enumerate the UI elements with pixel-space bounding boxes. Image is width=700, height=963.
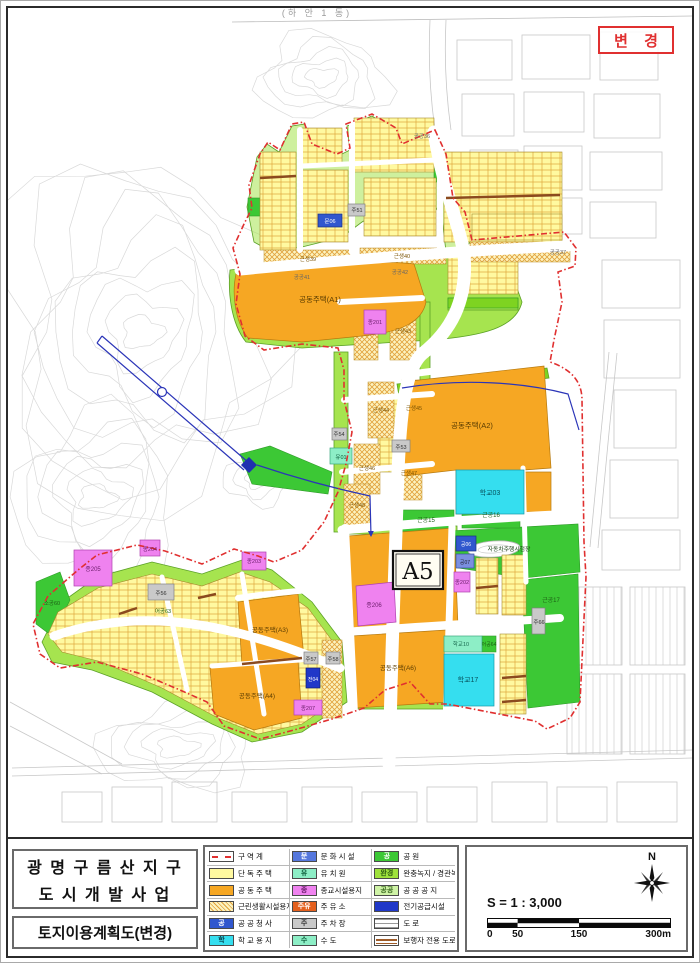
scale-tick-label: 150 (571, 929, 588, 940)
legend-label: 주 차 장 (321, 918, 346, 929)
map-label: 학교03 (480, 488, 501, 497)
legend-label: 보행자 전용 도로 (403, 935, 455, 946)
map-label: 주56 (155, 590, 166, 597)
north-label: N (632, 851, 672, 863)
map-label: 근생47 (401, 469, 417, 477)
map-label: 공동주택(A1) (299, 294, 341, 304)
legend-swatch-color: 공 (209, 918, 234, 929)
legend-label: 구 역 계 (238, 851, 263, 862)
legend-swatch-ped (374, 935, 399, 946)
legend-swatch-color: 학 (209, 935, 234, 946)
legend-label: 도 로 (403, 918, 419, 929)
map-label: 학교10 (453, 640, 469, 648)
svg-text:A5: A5 (401, 559, 433, 585)
legend-item: 단 독 주 택 (207, 866, 290, 883)
legend-item: 공 동 주 택 (207, 882, 290, 899)
legend-swatch-hatch (209, 901, 234, 912)
map-label: 근생45 (406, 404, 422, 412)
legend-panel: 구 역 계문문 화 시 설공공 원단 독 주 택유유 치 원완경완충녹지 / 경… (203, 845, 459, 952)
map-label: 종205 (85, 566, 101, 573)
map-label: 근공17 (542, 597, 560, 604)
landuse-map: A5 (하 안 1 동)공동주택(A1)공동주택(A2)공동주택(A3)공동주택… (8, 8, 692, 839)
legend-item: 도 로 (372, 916, 455, 933)
legend-label: 완충녹지 / 경관녹지 (403, 868, 455, 879)
map-label: 주57 (305, 656, 316, 663)
legend-label: 공 동 주 택 (238, 885, 272, 896)
legend-swatch-color: 종 (292, 885, 317, 896)
map-label: 공동주택(A6) (380, 663, 416, 672)
legend-item: 구 역 계 (207, 849, 290, 866)
legend-grid: 구 역 계문문 화 시 설공공 원단 독 주 택유유 치 원완경완충녹지 / 경… (207, 849, 455, 948)
map-label: 소공60 (44, 600, 60, 607)
legend-item: 공공공 공 공 지 (372, 882, 455, 899)
legend-label: 문 화 시 설 (321, 851, 355, 862)
map-label: 근생40 (394, 252, 410, 260)
map-label: (하 안 1 동) (282, 8, 352, 18)
title-panel: 광 명 구 름 산 지 구 도 시 개 발 사 업 토지이용계획도(변경) (12, 849, 198, 949)
legend-swatch-color (209, 885, 234, 896)
map-label: 주51 (351, 207, 362, 214)
legend-label: 공 공 청 사 (238, 918, 272, 929)
legend-item: 수수 도 (290, 932, 373, 948)
legend-swatch-color: 주 (292, 918, 317, 929)
legend-label: 공 공 공 지 (403, 885, 437, 896)
map-label: 문06 (324, 218, 335, 225)
legend-item: 유유 치 원 (290, 866, 373, 883)
map-label: 공공37 (550, 249, 566, 256)
plan-sheet: A5 (하 안 1 동)공동주택(A1)공동주택(A2)공동주택(A3)공동주택… (0, 0, 700, 963)
legend-item: 완경완충녹지 / 경관녹지 (372, 866, 455, 883)
legend-item: 공공 원 (372, 849, 455, 866)
map-label: 유01 (335, 454, 346, 461)
legend-label: 학 교 용 지 (238, 935, 272, 946)
map-label: 종206 (366, 602, 382, 609)
map-label: 공동주택(A2) (451, 420, 493, 430)
map-label: 공동주택(A4) (239, 691, 275, 700)
change-stamp: 변 경 (598, 26, 674, 54)
legend-swatch-color: 주유 (292, 901, 317, 912)
legend-item: 보행자 전용 도로 (372, 932, 455, 948)
legend-item: 공공 공 청 사 (207, 916, 290, 933)
legend-swatch-color (374, 901, 399, 912)
scale-panel: N (465, 845, 688, 952)
sheet-frame: A5 (하 안 1 동)공동주택(A1)공동주택(A2)공동주택(A3)공동주택… (6, 6, 694, 958)
legend-item: 주주 차 장 (290, 916, 373, 933)
legend-item: 학학 교 용 지 (207, 932, 290, 948)
map-label: 근공15 (417, 517, 435, 524)
scale-bar (487, 915, 671, 925)
scale-ticks: 050150300m (487, 929, 671, 943)
map-label: 자동차주행시험장 (488, 545, 531, 553)
legend-swatch-color: 공 (374, 851, 399, 862)
map-label: 어공64 (482, 641, 497, 648)
map-label: 근생44 (373, 406, 389, 414)
map-label: 공공36 (414, 133, 430, 140)
legend-swatch-color: 유 (292, 868, 317, 879)
map-label: 공동주택(A3) (252, 625, 288, 634)
map-label: 학교17 (458, 675, 479, 684)
legend-swatch-road (374, 918, 399, 929)
map-label: 근생46 (359, 464, 375, 472)
map-label: 주66 (533, 619, 544, 626)
legend-item: 종종교시설용지 (290, 882, 373, 899)
map-label: 종203 (247, 558, 261, 565)
map-label: 어공63 (155, 607, 171, 615)
parcel-apartment-a2-east (524, 472, 551, 512)
map-label: 종201 (368, 319, 382, 326)
drawing-title-box: 토지이용계획도(변경) (12, 916, 198, 949)
map-label: 종202 (455, 579, 469, 586)
legend-item: 근린생활시설용지 (207, 899, 290, 916)
legend-label: 주 유 소 (321, 901, 346, 912)
map-label: 종204 (143, 546, 157, 553)
scale-tick-label: 300m (645, 929, 671, 940)
map-label: 공공41 (294, 274, 310, 281)
map-label: 근공16 (482, 512, 500, 519)
legend-swatch-color (209, 868, 234, 879)
map-label: 공06 (461, 542, 471, 548)
project-title-line1: 광 명 구 름 산 지 구 (14, 854, 196, 878)
map-area: A5 (하 안 1 동)공동주택(A1)공동주택(A2)공동주택(A3)공동주택… (8, 8, 692, 839)
legend-swatch-color: 수 (292, 935, 317, 946)
north-indicator: N (632, 851, 672, 908)
map-label: 근생43 (395, 327, 411, 335)
legend-label: 유 치 원 (321, 868, 346, 879)
map-label: 근생39 (300, 255, 316, 263)
map-label: 주54 (333, 431, 344, 438)
panel-zone: 광 명 구 름 산 지 구 도 시 개 발 사 업 토지이용계획도(변경) 구 … (8, 841, 692, 956)
map-label: 공07 (460, 560, 470, 566)
project-title-line2: 도 시 개 발 사 업 (14, 881, 196, 905)
legend-swatch-color: 공공 (374, 885, 399, 896)
map-label: 근생48 (349, 501, 365, 509)
map-label: 주58 (327, 656, 338, 663)
map-label: 전04 (308, 676, 318, 683)
legend-label: 전기공급시설 (403, 901, 444, 912)
legend-label: 종교시설용지 (321, 885, 362, 896)
legend-label: 공 원 (403, 851, 419, 862)
scale-ratio-text: S = 1 : 3,000 (487, 895, 562, 910)
a5-highlight-badge: A5 (393, 551, 443, 589)
legend-label: 수 도 (321, 935, 337, 946)
legend-item: 전기공급시설 (372, 899, 455, 916)
legend-label: 단 독 주 택 (238, 868, 272, 879)
legend-item: 주유주 유 소 (290, 899, 373, 916)
legend-swatch-boundary (209, 851, 234, 862)
map-label: 주53 (395, 444, 406, 451)
legend-item: 문문 화 시 설 (290, 849, 373, 866)
legend-swatch-color: 문 (292, 851, 317, 862)
project-title-box: 광 명 구 름 산 지 구 도 시 개 발 사 업 (12, 849, 198, 909)
scale-tick-label: 0 (487, 929, 493, 940)
compass-rose-icon (633, 863, 671, 903)
legend-swatch-color: 완경 (374, 868, 399, 879)
map-label: 공공42 (392, 269, 408, 276)
scale-tick-label: 50 (512, 929, 523, 940)
map-label: 종207 (301, 705, 315, 712)
legend-label: 근린생활시설용지 (238, 901, 290, 912)
